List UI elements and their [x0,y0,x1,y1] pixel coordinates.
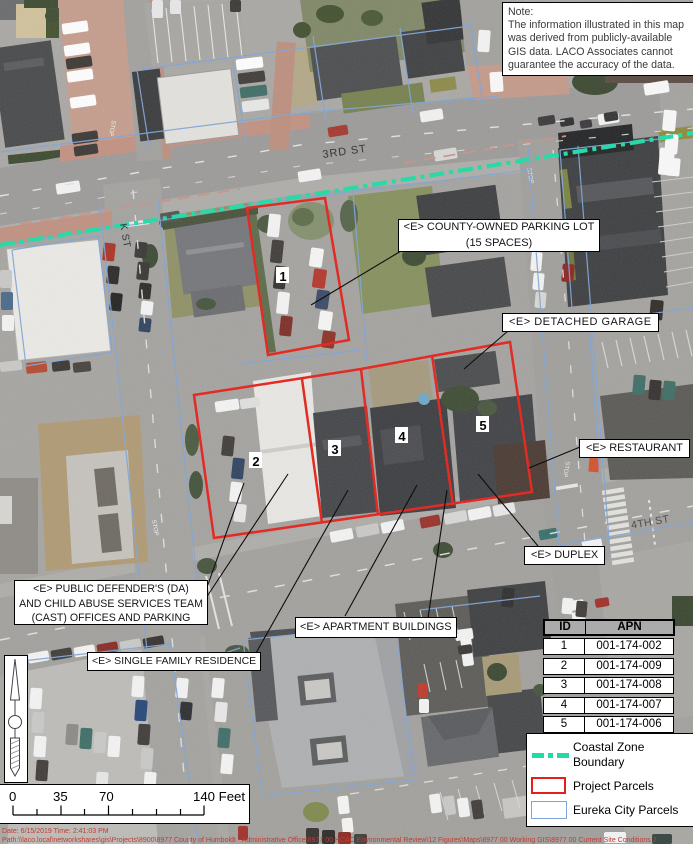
svg-text:5: 5 [479,418,486,433]
svg-text:3: 3 [331,442,338,457]
svg-text:1: 1 [279,269,286,284]
svg-text:2: 2 [252,454,259,469]
svg-text:35: 35 [53,789,68,804]
svg-text:0: 0 [9,789,16,804]
svg-text:70: 70 [99,789,114,804]
svg-text:4: 4 [398,429,406,444]
svg-text:140 Feet: 140 Feet [193,789,245,804]
